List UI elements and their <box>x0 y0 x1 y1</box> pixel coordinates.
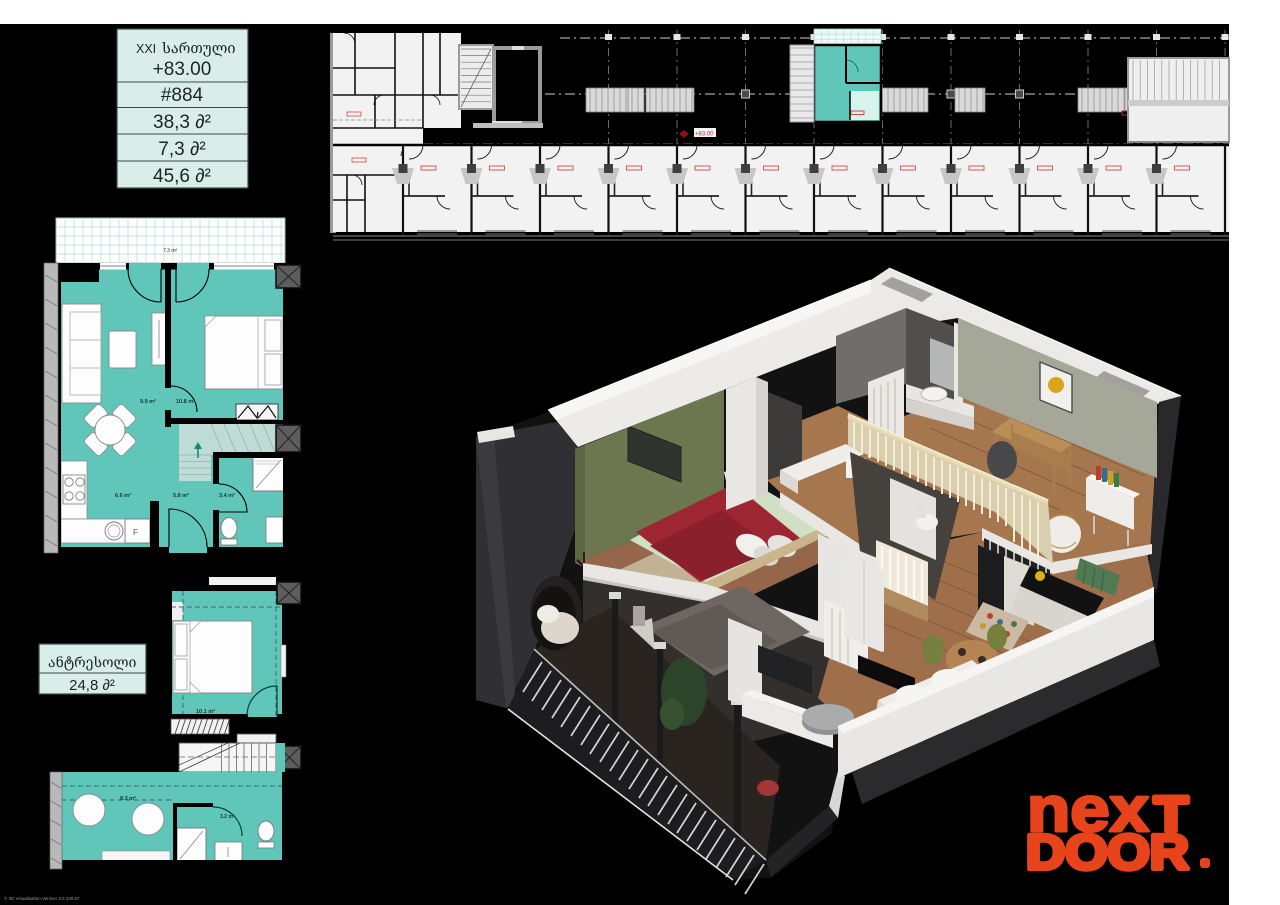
svg-text:9.9 m²: 9.9 m² <box>140 398 156 405</box>
svg-text:DOOR: DOOR <box>1026 826 1189 880</box>
svg-text:6.6 m²: 6.6 m² <box>115 492 131 499</box>
svg-text:10.1 m²: 10.1 m² <box>196 708 215 715</box>
svg-text:© 3D Visualisation Version 3.0: © 3D Visualisation Version 3.0 100.87 <box>4 895 80 901</box>
svg-text:3.2 m²: 3.2 m² <box>220 814 235 820</box>
svg-text:5.8 m²: 5.8 m² <box>173 492 189 499</box>
svg-text:38,3 ∂²: 38,3 ∂² <box>153 112 211 133</box>
svg-text:#884: #884 <box>161 85 204 106</box>
svg-text:7.3 m²: 7.3 m² <box>163 248 178 254</box>
svg-text:F: F <box>133 528 138 537</box>
svg-text:+83.00: +83.00 <box>153 59 212 80</box>
svg-text:7,3 ∂²: 7,3 ∂² <box>158 139 205 160</box>
svg-text:10.8 m²: 10.8 m² <box>176 398 195 405</box>
svg-text:8.3 m²: 8.3 m² <box>120 795 136 802</box>
svg-text:+83.00: +83.00 <box>695 132 714 138</box>
svg-text:24,8 ∂²: 24,8 ∂² <box>69 677 115 694</box>
svg-text:XXI: XXI <box>136 42 156 56</box>
svg-text:45,6 ∂²: 45,6 ∂² <box>153 166 211 187</box>
svg-text:3.4 m²: 3.4 m² <box>219 492 235 499</box>
